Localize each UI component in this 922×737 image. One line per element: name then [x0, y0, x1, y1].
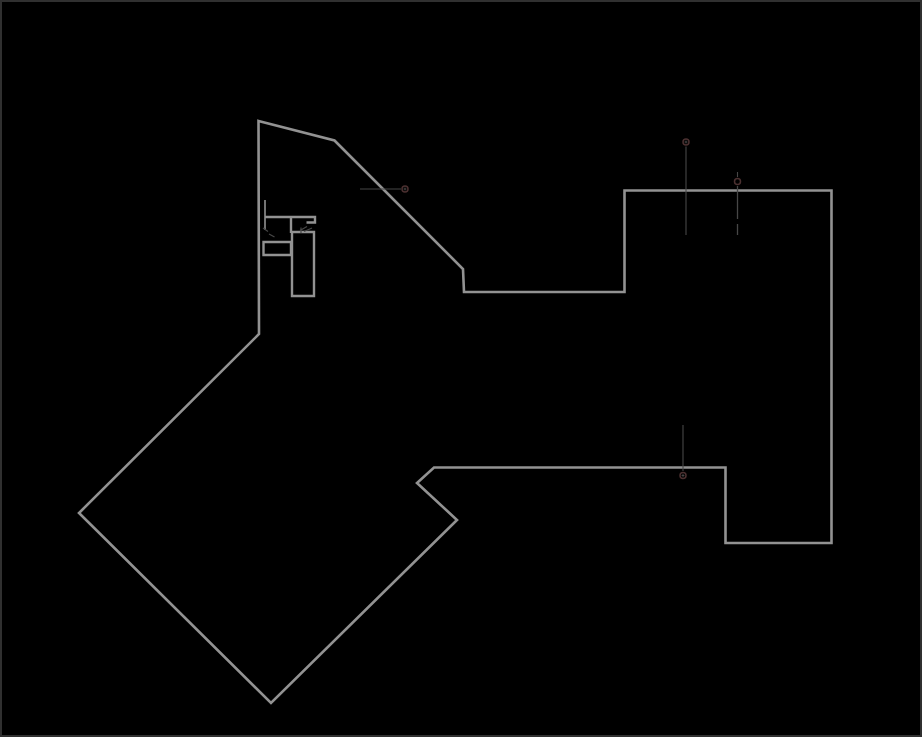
cad-canvas[interactable] — [0, 0, 922, 737]
stair-detail-horizontal-bar[interactable] — [264, 242, 292, 255]
node-marker-cross-left — [404, 188, 407, 191]
stair-detail-tall-bar[interactable] — [292, 232, 314, 296]
canvas-border — [1, 1, 921, 736]
hatch-tick-2 — [269, 234, 275, 237]
node-marker-cross-top-1 — [685, 141, 688, 144]
node-marker-ring-top-2[interactable] — [735, 179, 741, 185]
floorplan-outline[interactable] — [79, 121, 832, 703]
node-marker-cross-bottom — [682, 474, 685, 477]
drawing-svg — [0, 0, 922, 737]
